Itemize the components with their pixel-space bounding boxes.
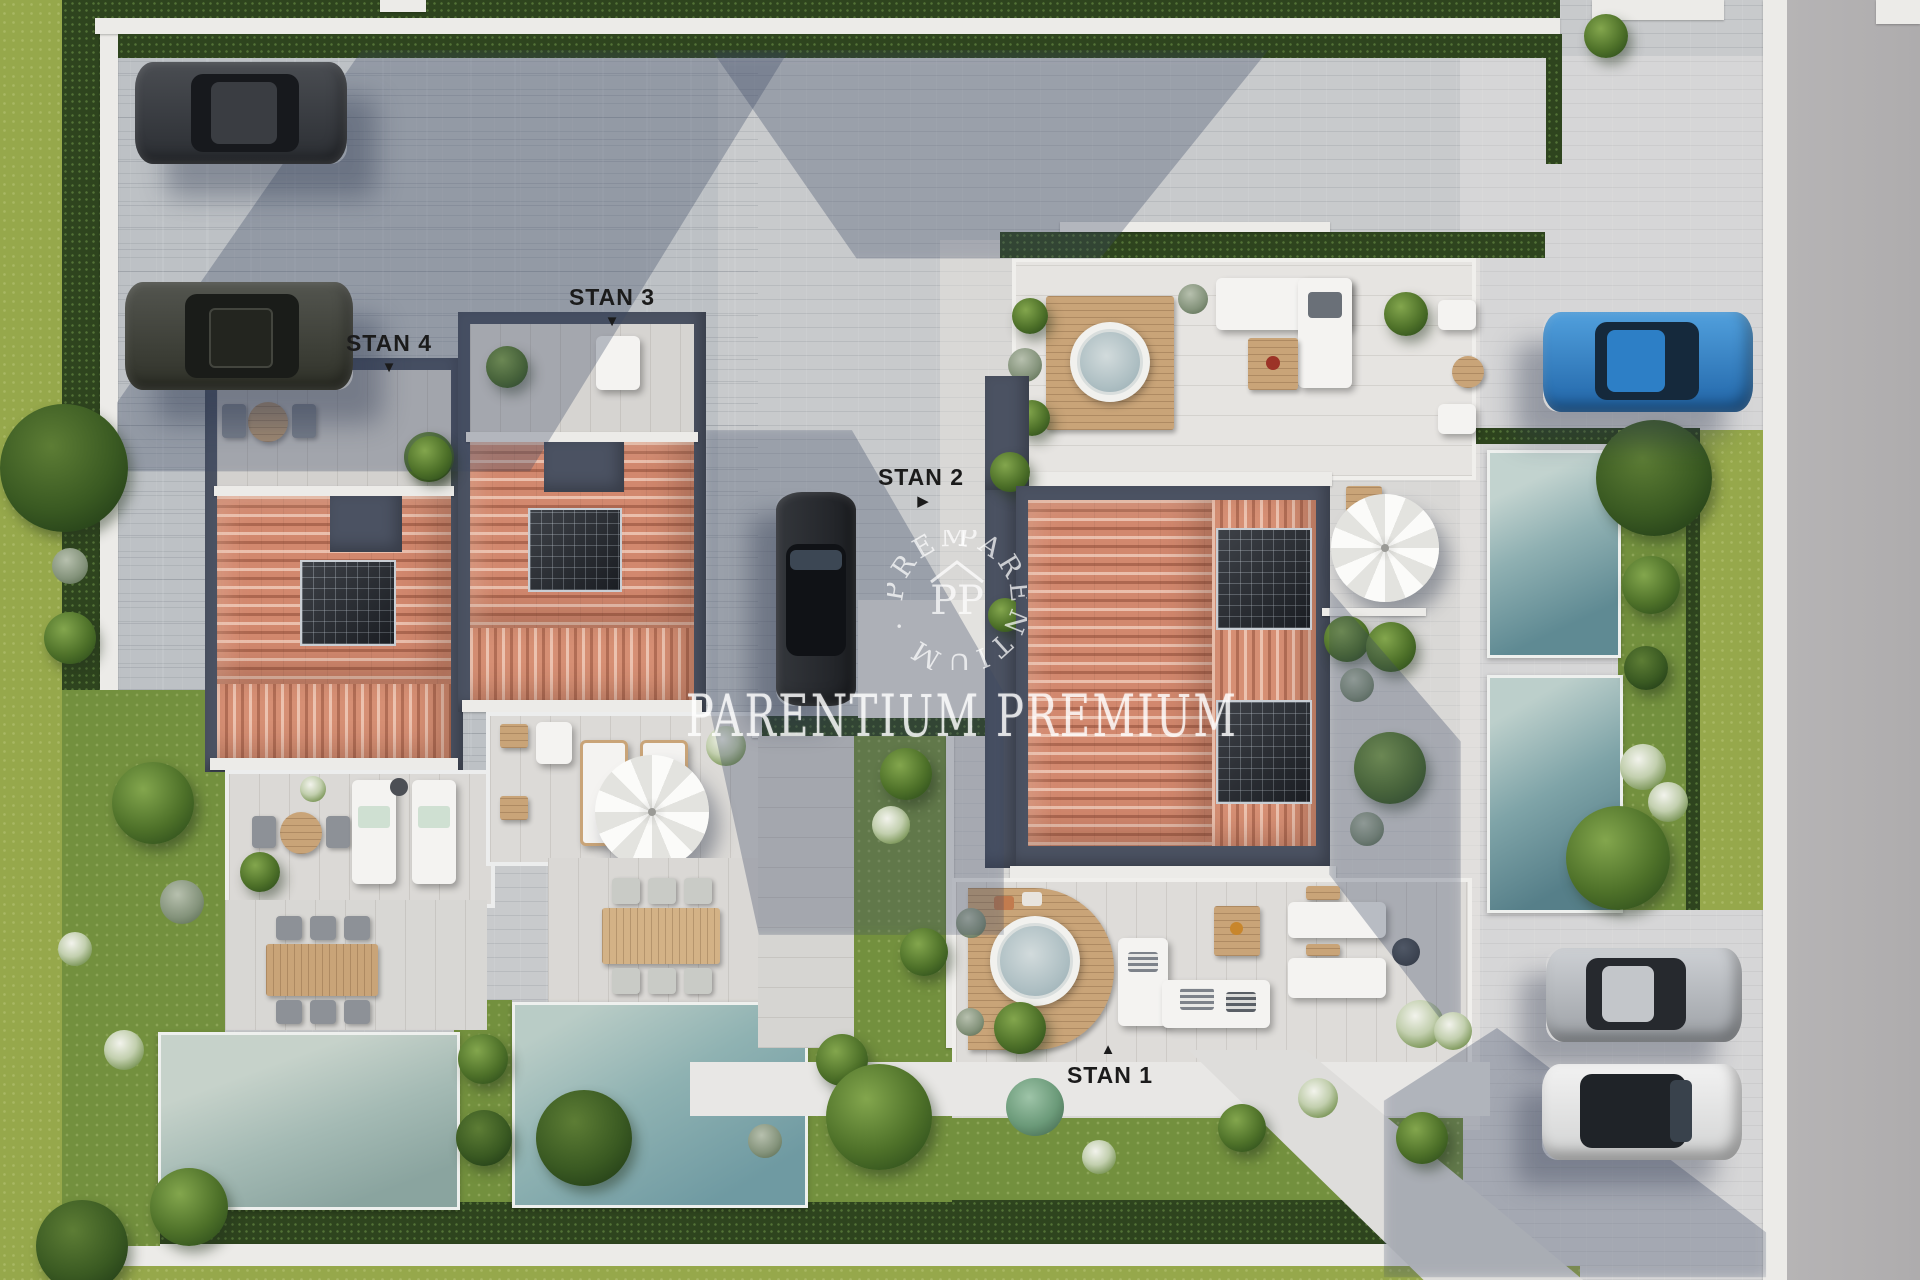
striped-pillow xyxy=(1180,988,1214,1010)
stan4-balcony-table xyxy=(280,812,322,854)
dining-chair xyxy=(648,968,676,994)
lounger-side-table xyxy=(1306,886,1340,900)
bush xyxy=(1178,284,1208,314)
dining-chair xyxy=(344,1000,370,1024)
garden-mid-left-column xyxy=(454,1000,512,1202)
road-right xyxy=(1787,0,1920,1280)
bush xyxy=(1624,646,1668,690)
house-stan4-roof-lower xyxy=(217,684,451,758)
flower-bush xyxy=(104,1030,144,1070)
bush xyxy=(1622,556,1680,614)
umbrella-pole-top xyxy=(648,808,656,816)
flower-bush xyxy=(58,932,92,966)
striped-pillow xyxy=(1226,992,1256,1012)
roof-side-table xyxy=(1452,356,1484,388)
flower-bush xyxy=(1082,1140,1116,1174)
roof-side-chair xyxy=(1438,300,1476,330)
bush xyxy=(880,748,932,800)
tree xyxy=(826,1064,932,1170)
hedge-top-outer xyxy=(95,0,1560,18)
dining-chair xyxy=(648,878,676,904)
car-windshield xyxy=(790,550,842,570)
stan4-ridge-cap xyxy=(214,486,454,496)
striped-pillow xyxy=(1128,952,1158,972)
car-black-driveway xyxy=(776,492,856,706)
car-roof xyxy=(211,82,277,144)
bush xyxy=(748,1124,782,1158)
villa-solar-array-upper xyxy=(1216,528,1312,630)
tree xyxy=(536,1090,632,1186)
side-table xyxy=(390,778,408,796)
car-sunroof xyxy=(209,308,273,368)
deck-pillow xyxy=(1022,892,1042,906)
villa-umbrella xyxy=(1331,494,1439,602)
stan3-side-table xyxy=(500,724,528,748)
stan4-eave xyxy=(210,758,458,770)
stan4-balcony-chair xyxy=(252,816,276,848)
flower-bush xyxy=(1298,1078,1338,1118)
villa-lounger xyxy=(1288,958,1386,998)
tree xyxy=(0,404,128,532)
flower-bed xyxy=(1648,782,1688,822)
bush xyxy=(456,1110,512,1166)
bush xyxy=(1006,1078,1064,1136)
watermark-logo-monogram: PP xyxy=(930,578,984,624)
lounger-cushion xyxy=(418,806,450,828)
stan4-dining-table xyxy=(266,944,378,996)
bush xyxy=(408,436,452,480)
stan3-solar-panels xyxy=(528,508,622,592)
sofa-cushion xyxy=(1308,292,1342,318)
watermark-logo: PARENTIUM · PREMIUM · PP xyxy=(887,530,1027,670)
villa-roof-tiles xyxy=(1028,500,1212,846)
car-blue xyxy=(1543,312,1753,412)
stan4-lounger xyxy=(352,780,396,884)
bush xyxy=(52,548,88,584)
label-stan4: STAN 4 xyxy=(346,330,432,357)
car-white xyxy=(1542,1064,1742,1160)
flower-pot xyxy=(300,776,326,802)
stan3-side-table xyxy=(500,796,528,820)
tree xyxy=(112,762,194,844)
stan4-lounger xyxy=(412,780,456,884)
label-stan2: STAN 2 xyxy=(878,464,964,491)
lounger-side-table xyxy=(1306,944,1340,956)
dining-chair xyxy=(612,878,640,904)
dining-chair xyxy=(684,878,712,904)
bush xyxy=(956,1008,984,1036)
bush xyxy=(994,1002,1046,1054)
bush xyxy=(1584,14,1628,58)
stan4-solar-panels xyxy=(300,560,396,646)
lawn-right-strip xyxy=(1700,430,1763,910)
stan3-armchair xyxy=(536,722,572,764)
dining-chair xyxy=(344,916,370,940)
dining-chair xyxy=(310,1000,336,1024)
building-top-left xyxy=(380,0,426,12)
tree xyxy=(1596,420,1712,536)
dining-chair xyxy=(276,916,302,940)
label-stan1-arrow: ▲ xyxy=(1101,1042,1116,1057)
lawn-bottom-outside xyxy=(0,1266,1580,1280)
flower-bush xyxy=(1434,1012,1472,1050)
car-dark-2 xyxy=(125,282,353,390)
tree xyxy=(1566,806,1670,910)
wall-bottom xyxy=(100,1244,1500,1268)
villa-roof-jacuzzi xyxy=(1070,322,1150,402)
roof-side-chair xyxy=(1438,404,1476,434)
label-stan2-arrow: ▶ xyxy=(917,494,929,509)
bush xyxy=(240,852,280,892)
jacuzzi-water xyxy=(997,923,1073,999)
building-across-road-2 xyxy=(1876,0,1920,24)
garden-left-upper xyxy=(62,690,225,1032)
car-dark-1 xyxy=(135,62,347,164)
jacuzzi-water xyxy=(1077,329,1143,395)
patio-umbrella xyxy=(595,755,709,869)
hedge-top-right-corner xyxy=(1546,34,1562,164)
car-roof xyxy=(1607,330,1665,392)
villa-eave xyxy=(1010,866,1336,878)
aerial-render-scene: STAN 4 ▼ STAN 3 ▼ STAN 2 ▶ ▲ STAN 1 PARE… xyxy=(0,0,1920,1280)
dining-chair xyxy=(310,916,336,940)
bush xyxy=(44,612,96,664)
planter-bush xyxy=(1384,292,1428,336)
label-stan3: STAN 3 xyxy=(569,284,655,311)
tree xyxy=(150,1168,228,1246)
car-windshield xyxy=(1670,1080,1692,1142)
flower-bush xyxy=(872,806,910,844)
stan3-eave xyxy=(462,700,702,712)
wall-top xyxy=(95,18,1560,34)
lounger-cushion xyxy=(358,806,390,828)
dining-chair xyxy=(612,968,640,994)
stan3-dining-table xyxy=(602,908,720,964)
stan4-balcony-chair xyxy=(326,816,350,848)
house-stan3-roof-lower xyxy=(470,628,694,700)
bush xyxy=(458,1034,508,1084)
umbrella-pole-top xyxy=(1381,544,1389,552)
bush xyxy=(160,880,204,924)
stan3-roof-notch xyxy=(544,442,624,492)
stan4-roof-notch xyxy=(330,496,402,552)
bush xyxy=(1396,1112,1448,1164)
curb-right xyxy=(1763,0,1787,1280)
villa-ridge-strip xyxy=(1012,472,1332,486)
dining-chair xyxy=(684,968,712,994)
label-stan3-arrow: ▼ xyxy=(605,314,620,329)
dining-chair xyxy=(276,1000,302,1024)
watermark-title: PARENTIUM PREMIUM xyxy=(686,682,1238,750)
fruit-bowl xyxy=(1230,922,1243,935)
bush xyxy=(1012,298,1048,334)
label-stan1: STAN 1 xyxy=(1067,1062,1153,1089)
bush xyxy=(900,928,948,976)
car-roof xyxy=(1602,966,1654,1022)
decor-bowl xyxy=(1266,356,1280,370)
label-stan4-arrow: ▼ xyxy=(382,360,397,375)
bush xyxy=(1218,1104,1266,1152)
car-silver xyxy=(1546,948,1742,1042)
